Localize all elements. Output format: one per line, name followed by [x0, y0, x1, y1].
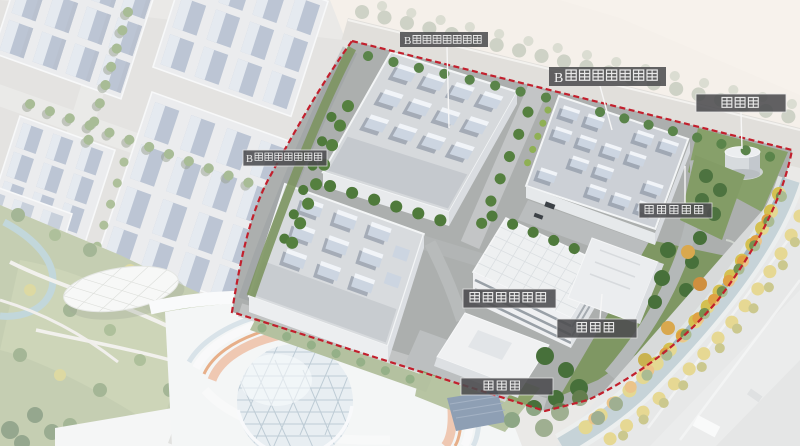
svg-text:B: B	[404, 35, 411, 47]
svg-text:B: B	[246, 154, 253, 165]
svg-text:B: B	[554, 71, 563, 86]
